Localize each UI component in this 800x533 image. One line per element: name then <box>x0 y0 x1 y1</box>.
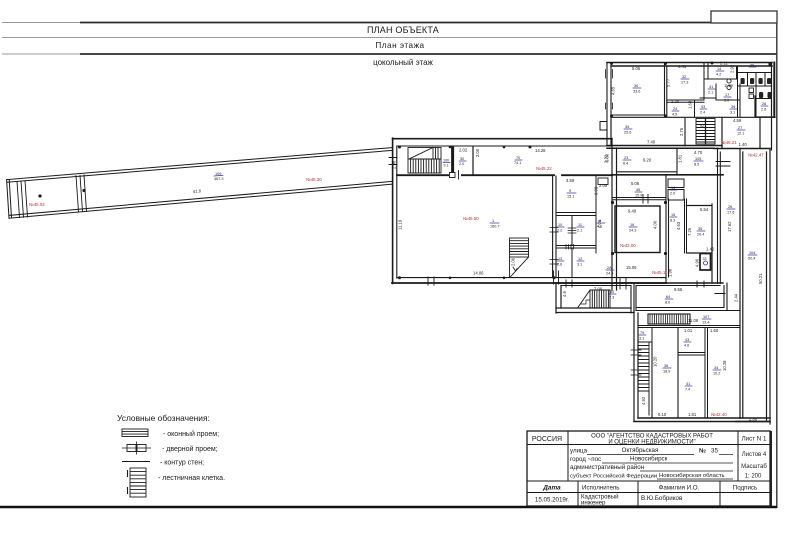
svg-text:1: 1 <box>492 219 494 223</box>
svg-text:32: 32 <box>682 75 686 79</box>
svg-text:2А: 2А <box>607 266 612 270</box>
svg-text:- дверной проем;: - дверной проем; <box>162 445 218 453</box>
svg-text:9.49: 9.49 <box>628 209 637 214</box>
svg-text:2.02: 2.02 <box>459 148 468 153</box>
svg-text:2.92: 2.92 <box>730 64 735 73</box>
svg-text:107: 107 <box>703 315 709 319</box>
svg-text:18.9: 18.9 <box>663 370 670 374</box>
svg-text:41.8: 41.8 <box>193 188 202 194</box>
svg-text:33.6: 33.6 <box>633 90 640 94</box>
svg-text:2.44: 2.44 <box>734 293 739 302</box>
svg-text:60: 60 <box>610 290 614 294</box>
svg-text:№: № <box>699 448 706 455</box>
svg-text:4.2: 4.2 <box>716 73 721 77</box>
svg-text:1.42: 1.42 <box>706 247 715 252</box>
svg-text:35: 35 <box>711 448 718 455</box>
svg-text:7.26: 7.26 <box>687 227 692 236</box>
svg-text:5.10: 5.10 <box>658 412 667 417</box>
svg-text:№45.11: №45.11 <box>652 270 668 275</box>
svg-text:17.62: 17.62 <box>727 221 732 232</box>
svg-text:8.98: 8.98 <box>594 186 599 195</box>
svg-text:2.4: 2.4 <box>700 111 705 115</box>
svg-text:15.06: 15.06 <box>626 265 637 270</box>
svg-text:4.5: 4.5 <box>672 113 677 117</box>
svg-text:субъект Российской Федерации: субъект Российской Федерации <box>570 473 657 480</box>
svg-text:12.1: 12.1 <box>737 132 744 136</box>
svg-text:Листов 4: Листов 4 <box>742 452 767 458</box>
svg-text:467.3: 467.3 <box>214 177 224 181</box>
svg-text:39: 39 <box>731 105 735 109</box>
svg-text:№45.02: №45.02 <box>29 202 45 207</box>
svg-text:1: 200: 1: 200 <box>745 474 762 480</box>
svg-text:1.98: 1.98 <box>668 268 673 277</box>
svg-text:Масштаб: Масштаб <box>741 464 767 470</box>
svg-text:14.06: 14.06 <box>473 271 484 276</box>
svg-text:45: 45 <box>636 188 640 192</box>
svg-text:17.3: 17.3 <box>681 81 688 85</box>
svg-text:3.1: 3.1 <box>639 337 644 341</box>
svg-text:6.4: 6.4 <box>623 162 628 166</box>
svg-text:Новосибирская область: Новосибирская область <box>659 473 725 479</box>
svg-text:104: 104 <box>749 251 755 255</box>
svg-text:5.77: 5.77 <box>666 78 671 87</box>
svg-text:9.56: 9.56 <box>674 287 683 292</box>
svg-text:26: 26 <box>762 102 766 106</box>
svg-text:14: 14 <box>717 67 721 71</box>
svg-text:100: 100 <box>443 159 449 163</box>
svg-text:Дата: Дата <box>542 485 561 492</box>
svg-text:8.3: 8.3 <box>670 219 675 223</box>
svg-text:4.92: 4.92 <box>641 396 646 405</box>
svg-text:№42.47: №42.47 <box>748 153 764 158</box>
svg-text:15.05.2019г.: 15.05.2019г. <box>535 497 569 504</box>
svg-text:9.20: 9.20 <box>643 158 652 163</box>
svg-text:24: 24 <box>673 107 677 111</box>
svg-text:1.81: 1.81 <box>678 154 683 163</box>
svg-text:10: 10 <box>558 223 562 227</box>
svg-text:7.40: 7.40 <box>647 140 656 145</box>
svg-text:4.63: 4.63 <box>676 221 681 230</box>
svg-text:33: 33 <box>703 257 707 261</box>
svg-text:3.0: 3.0 <box>724 99 729 103</box>
svg-text:36: 36 <box>664 364 668 368</box>
svg-text:инженер: инженер <box>581 500 606 507</box>
svg-text:92: 92 <box>700 124 704 128</box>
svg-text:1.63: 1.63 <box>688 100 693 109</box>
svg-text:ПЛАН ОБЪЕКТА: ПЛАН ОБЪЕКТА <box>367 25 439 35</box>
svg-text:2.76: 2.76 <box>679 127 684 136</box>
svg-text:3.1: 3.1 <box>577 263 582 267</box>
svg-text:7.4: 7.4 <box>685 388 690 392</box>
svg-text:4.70: 4.70 <box>694 150 703 155</box>
svg-text:2.0: 2.0 <box>459 162 464 166</box>
svg-text:4.41: 4.41 <box>678 64 687 69</box>
svg-text:3.59: 3.59 <box>566 178 575 183</box>
svg-text:93: 93 <box>701 105 705 109</box>
svg-text:1.60: 1.60 <box>710 328 719 333</box>
svg-text:11.08: 11.08 <box>688 318 699 323</box>
svg-text:4.9: 4.9 <box>562 291 567 297</box>
svg-text:Условные обозначения:: Условные обозначения: <box>117 413 210 423</box>
svg-text:10.2: 10.2 <box>713 372 720 376</box>
svg-text:И ОЦЕНКИ НЕДВИЖИМОСТИ": И ОЦЕНКИ НЕДВИЖИМОСТИ" <box>608 440 695 446</box>
svg-text:Исполнитель: Исполнитель <box>582 485 620 492</box>
svg-text:4.6: 4.6 <box>684 344 689 348</box>
svg-text:РОССИЯ: РОССИЯ <box>532 436 562 443</box>
svg-text:70: 70 <box>516 156 520 160</box>
svg-text:1.01: 1.01 <box>684 328 693 333</box>
svg-text:5.54: 5.54 <box>700 207 709 212</box>
svg-text:15.1: 15.1 <box>567 195 574 199</box>
svg-text:105: 105 <box>695 157 701 161</box>
svg-text:24.3: 24.3 <box>629 229 636 233</box>
svg-text:№45.21: №45.21 <box>721 140 737 145</box>
svg-text:5.06: 5.06 <box>631 181 640 186</box>
svg-text:Подпись: Подпись <box>733 485 758 492</box>
svg-text:50.21: 50.21 <box>758 273 763 284</box>
svg-text:8.5: 8.5 <box>694 163 699 167</box>
svg-text:24.9: 24.9 <box>606 272 613 276</box>
svg-text:2.11: 2.11 <box>720 61 729 66</box>
svg-text:2.30: 2.30 <box>671 99 680 104</box>
svg-text:41: 41 <box>686 382 690 386</box>
svg-text:15.9: 15.9 <box>635 194 642 198</box>
svg-text:11: 11 <box>578 223 582 227</box>
svg-text:16: 16 <box>630 223 634 227</box>
svg-text:13: 13 <box>558 257 562 261</box>
svg-text:2.1: 2.1 <box>708 91 713 95</box>
svg-text:№45.22: №45.22 <box>536 166 552 171</box>
svg-text:2.6: 2.6 <box>761 108 766 112</box>
svg-text:160.7: 160.7 <box>490 225 500 229</box>
svg-text:№42.00: №42.00 <box>620 243 636 248</box>
svg-text:№46.50: №46.50 <box>463 216 479 221</box>
svg-text:43: 43 <box>685 338 689 342</box>
svg-text:79: 79 <box>640 331 644 335</box>
svg-text:- лестничная клетка.: - лестничная клетка. <box>158 475 225 482</box>
svg-text:4.96: 4.96 <box>695 258 700 267</box>
svg-text:11.19: 11.19 <box>398 219 403 230</box>
svg-text:3.1: 3.1 <box>730 111 735 115</box>
svg-text:4.59: 4.59 <box>733 118 742 123</box>
svg-text:34: 34 <box>714 366 718 370</box>
svg-text:Лист N 1: Лист N 1 <box>742 436 767 443</box>
svg-text:4.00: 4.00 <box>597 219 602 228</box>
svg-text:улица: улица <box>570 448 588 455</box>
svg-text:64: 64 <box>666 295 670 299</box>
svg-text:2.0: 2.0 <box>670 192 675 196</box>
svg-text:2.06: 2.06 <box>511 257 516 266</box>
svg-text:4.65: 4.65 <box>611 86 616 95</box>
svg-text:№45.30: №45.30 <box>306 177 322 182</box>
svg-text:10.20: 10.20 <box>653 356 658 367</box>
svg-text:30: 30 <box>460 157 464 161</box>
svg-text:7.3: 7.3 <box>609 296 614 300</box>
svg-text:50.4: 50.4 <box>748 257 755 261</box>
svg-text:2.09: 2.09 <box>599 183 608 188</box>
svg-text:41: 41 <box>709 85 713 89</box>
svg-text:14: 14 <box>671 186 675 190</box>
svg-text:2.1: 2.1 <box>577 229 582 233</box>
svg-text:цокольный этаж: цокольный этаж <box>373 58 433 67</box>
svg-text:10.28: 10.28 <box>722 360 727 371</box>
svg-text:2.2: 2.2 <box>557 229 562 233</box>
svg-text:13.4: 13.4 <box>702 321 709 325</box>
svg-text:12: 12 <box>578 257 582 261</box>
svg-text:7.00: 7.00 <box>594 287 603 292</box>
svg-text:4.06: 4.06 <box>653 220 658 229</box>
svg-text:74.1: 74.1 <box>514 161 521 165</box>
svg-text:30: 30 <box>634 84 638 88</box>
svg-text:26: 26 <box>728 205 732 209</box>
svg-text:2.19: 2.19 <box>725 83 734 88</box>
svg-text:- оконный проем;: - оконный проем; <box>163 430 219 438</box>
svg-text:35: 35 <box>698 227 702 231</box>
svg-text:1.81: 1.81 <box>688 412 697 417</box>
svg-text:2.6: 2.6 <box>557 263 562 267</box>
svg-text:№42.40: №42.40 <box>711 412 727 417</box>
svg-text:17.6: 17.6 <box>727 211 734 215</box>
svg-text:15: 15 <box>671 213 675 217</box>
svg-text:Новосибирск: Новосибирск <box>630 456 668 463</box>
svg-text:17: 17 <box>725 93 729 97</box>
svg-text:9: 9 <box>569 189 571 193</box>
svg-text:город ~пос: город ~пос <box>570 456 601 463</box>
svg-text:административный район: административный район <box>570 464 644 471</box>
svg-text:9.1: 9.1 <box>444 164 449 168</box>
svg-text:20.4: 20.4 <box>697 233 704 237</box>
svg-text:23: 23 <box>624 156 628 160</box>
svg-text:В.Ю.Бобриков: В.Ю.Бобриков <box>641 495 683 502</box>
svg-text:План этажа: План этажа <box>375 41 424 50</box>
svg-text:2.00: 2.00 <box>475 148 480 157</box>
svg-text:2.32: 2.32 <box>604 154 609 163</box>
svg-text:34: 34 <box>625 125 629 129</box>
svg-text:27: 27 <box>738 126 742 130</box>
svg-text:Фамилия И.О.: Фамилия И.О. <box>659 485 700 492</box>
svg-text:Октябрьская: Октябрьская <box>622 447 659 454</box>
svg-text:1.40: 1.40 <box>739 142 748 147</box>
svg-text:14.28: 14.28 <box>535 148 546 153</box>
svg-text:- контур стен;: - контур стен; <box>160 460 204 467</box>
svg-text:5.06: 5.06 <box>632 66 641 71</box>
svg-text:25.6: 25.6 <box>624 131 631 135</box>
svg-text:8.0: 8.0 <box>665 301 670 305</box>
